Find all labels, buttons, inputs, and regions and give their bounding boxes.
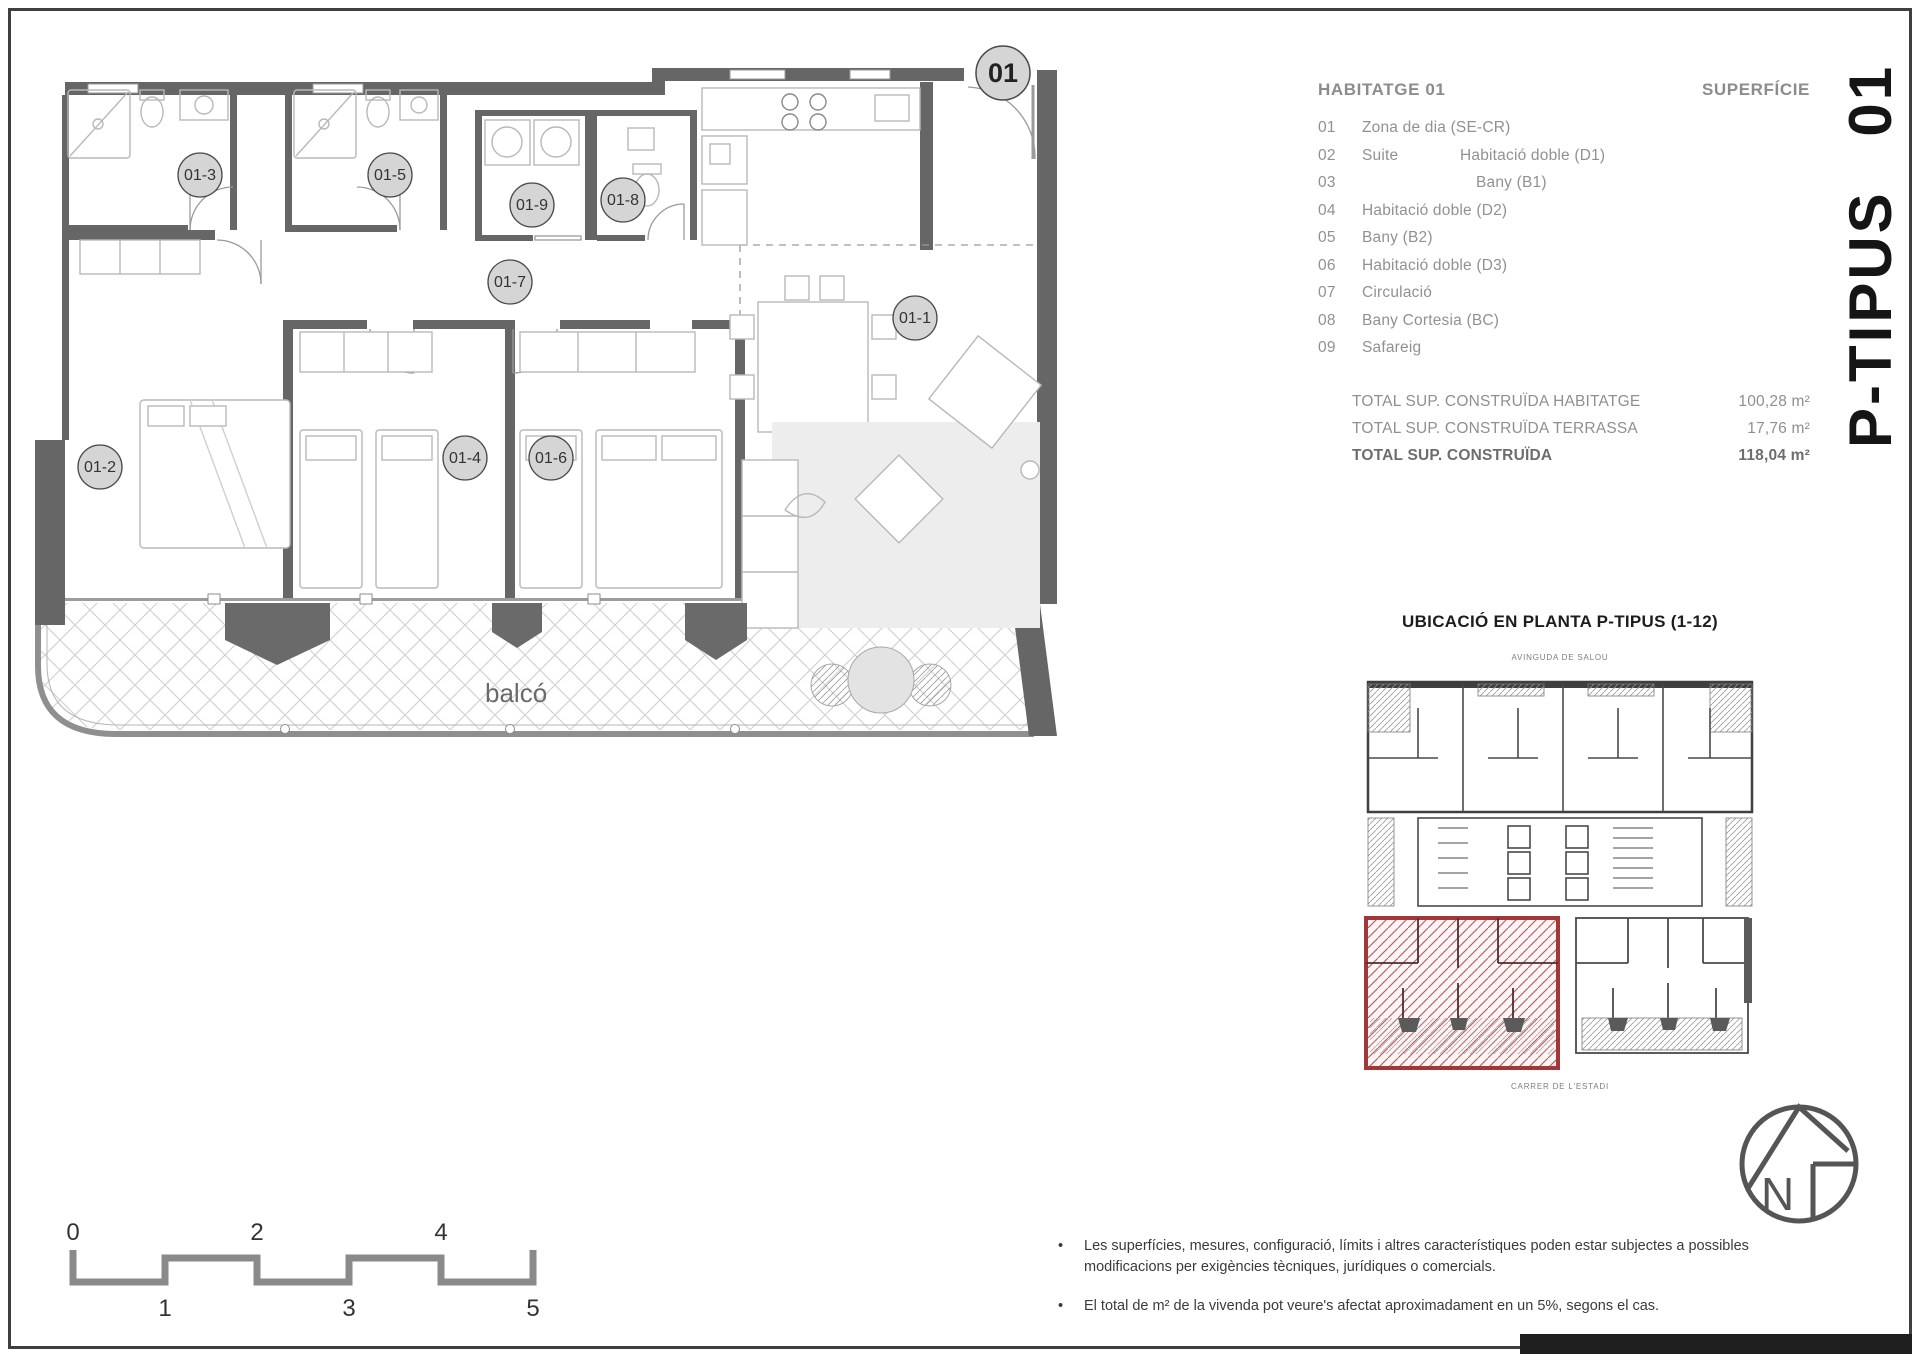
total-row: TOTAL SUP. CONSTRUÏDA TERRASSA17,76 m² <box>1318 415 1810 442</box>
room-bubble: 01-8 <box>601 178 645 222</box>
room-bubble: 01-4 <box>443 436 487 480</box>
legend-item: 02SuiteHabitació doble (D1) <box>1318 142 1810 170</box>
scale-label: 5 <box>526 1295 539 1322</box>
dining-set <box>730 276 896 432</box>
unit-bubble: 01 <box>976 46 1030 100</box>
room-bubble: 01-9 <box>510 183 554 227</box>
scale-label: 1 <box>158 1295 171 1322</box>
floor-plan: balcó 01-1 01-2 01-3 01-4 01-5 01-6 01-7… <box>30 40 1080 750</box>
mini-plan-core <box>1368 818 1752 906</box>
legend-item: 01Zona de dia (SE-CR) <box>1318 114 1810 142</box>
legend-title: HABITATGE 01 <box>1318 80 1445 100</box>
total-row-grand: TOTAL SUP. CONSTRUÏDA118,04 m² <box>1318 442 1810 469</box>
bullet: • <box>1058 1296 1084 1317</box>
balcony-label: balcó <box>485 678 547 708</box>
total-row: TOTAL SUP. CONSTRUÏDA HABITATGE100,28 m² <box>1318 388 1810 415</box>
bathroom1-fixtures <box>68 90 228 158</box>
note-item: • Les superfícies, mesures, configuració… <box>1058 1236 1828 1278</box>
room-bubble: 01-2 <box>78 445 122 489</box>
svg-text:01-7: 01-7 <box>494 274 526 291</box>
bedroom2-furniture <box>300 332 438 588</box>
bottom-right-black-bar <box>1520 1334 1912 1354</box>
legend-item: 03Bany (B1) <box>1318 169 1810 197</box>
kitchen-fixtures <box>702 88 920 245</box>
scale-bar: 0 2 4 1 3 5 <box>48 1218 558 1328</box>
scale-label: 0 <box>66 1219 79 1246</box>
mini-plan-top-units <box>1368 682 1752 812</box>
svg-text:01-3: 01-3 <box>184 167 216 184</box>
superficie-header: SUPERFÍCIE <box>1702 80 1810 100</box>
legend-item: 09Safareig <box>1318 334 1810 362</box>
notes-block: • Les superfícies, mesures, configuració… <box>1058 1236 1828 1335</box>
svg-text:01-8: 01-8 <box>607 192 639 209</box>
legend-item: 07Circulació <box>1318 279 1810 307</box>
svg-text:01: 01 <box>988 58 1018 88</box>
legend-item: 06Habitació doble (D3) <box>1318 252 1810 280</box>
mini-plan-highlight-unit <box>1366 918 1558 1068</box>
svg-text:01-1: 01-1 <box>899 310 931 327</box>
room-bubble: 01-6 <box>529 436 573 480</box>
location-title: UBICACIÓ EN PLANTA P-TIPUS (1-12) <box>1360 612 1760 632</box>
svg-text:01-4: 01-4 <box>449 450 481 467</box>
bathroom2-fixtures <box>294 90 438 158</box>
totals-block: TOTAL SUP. CONSTRUÏDA HABITATGE100,28 m²… <box>1318 388 1810 469</box>
legend-panel: HABITATGE 01 SUPERFÍCIE 01Zona de dia (S… <box>1318 80 1810 469</box>
laundry-washers <box>485 120 579 165</box>
note-item: • El total de m² de la vivenda pot veure… <box>1058 1296 1828 1317</box>
note-text: Les superfícies, mesures, configuració, … <box>1084 1236 1828 1278</box>
note-text: El total de m² de la vivenda pot veure's… <box>1084 1296 1659 1317</box>
svg-text:01-6: 01-6 <box>535 450 567 467</box>
room-bubble: 01-7 <box>488 260 532 304</box>
scale-label: 3 <box>342 1295 355 1322</box>
room-bubble: 01-3 <box>178 153 222 197</box>
legend-item: 08Bany Cortesia (BC) <box>1318 307 1810 335</box>
room-bubble: 01-1 <box>893 296 937 340</box>
location-mini-plan <box>1358 668 1762 1078</box>
svg-text:01-5: 01-5 <box>374 167 406 184</box>
bullet: • <box>1058 1236 1084 1278</box>
scale-label: 2 <box>250 1219 263 1246</box>
suite-furniture <box>80 240 290 548</box>
north-arrow: N <box>1733 1092 1868 1237</box>
mini-plan-neighbor-unit <box>1576 918 1752 1053</box>
sheet-title-vertical: P-TIPUS 01 <box>1836 18 1905 448</box>
street-label-top: AVINGUDA DE SALOU <box>1360 653 1760 662</box>
svg-text:01-9: 01-9 <box>516 197 548 214</box>
street-label-bottom: CARRER DE L'ESTADI <box>1360 1082 1760 1091</box>
legend-item: 04Habitació doble (D2) <box>1318 197 1810 225</box>
room-bubble: 01-5 <box>368 153 412 197</box>
svg-text:01-2: 01-2 <box>84 459 116 476</box>
legend-item: 05Bany (B2) <box>1318 224 1810 252</box>
scale-label: 4 <box>434 1219 447 1246</box>
north-letter: N <box>1761 1168 1794 1220</box>
